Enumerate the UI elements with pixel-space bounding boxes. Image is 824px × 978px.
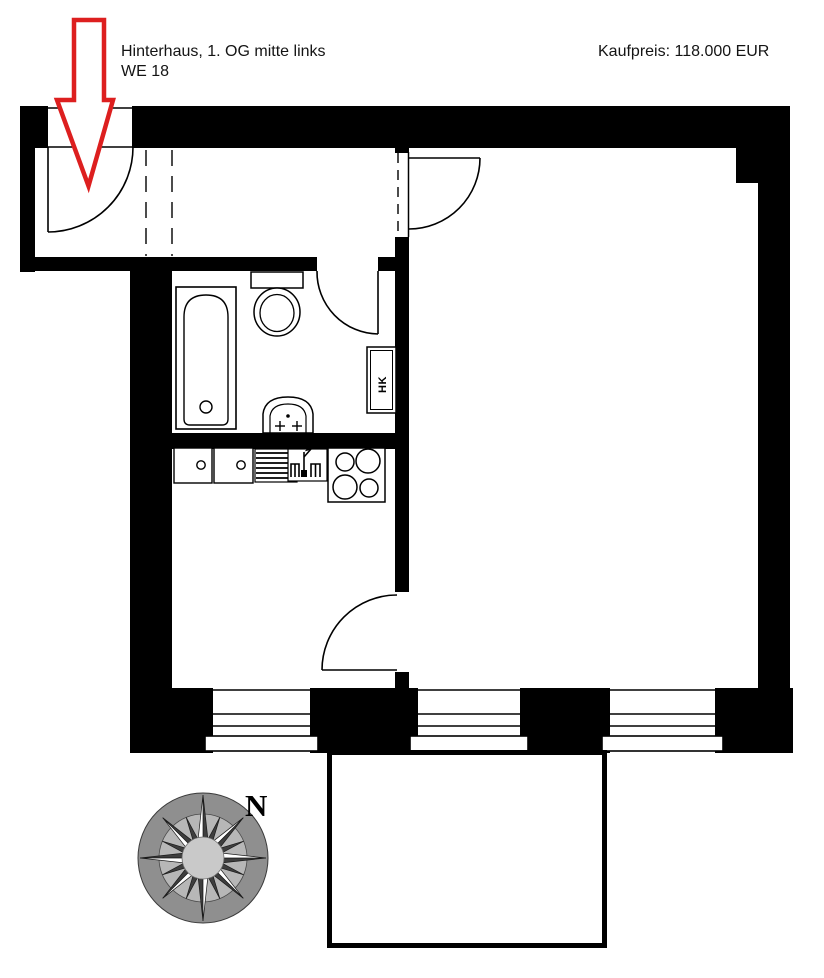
window-sill-living-1	[410, 736, 528, 751]
living-room-door	[409, 158, 480, 229]
living-door-swing	[409, 158, 480, 229]
wall-left-vestibule	[20, 106, 35, 272]
wall-bottom-pier-1	[310, 688, 418, 753]
balcony	[330, 753, 605, 946]
wall-right	[758, 106, 790, 753]
sink-drain-2	[237, 461, 245, 469]
floor-plan-page: Hinterhaus, 1. OG mitte links WE 18 Kauf…	[0, 0, 824, 978]
washbasin-drain	[286, 414, 290, 418]
kitchen-sink-basin-2	[214, 448, 253, 483]
stove	[328, 448, 385, 502]
wall-bottom-pier-2	[520, 688, 610, 753]
wall-left-lower	[130, 257, 172, 753]
dashed-partitions	[146, 150, 398, 256]
kitchen-sink-basin-1	[174, 448, 212, 483]
radiator: HK	[367, 347, 396, 413]
unit-pointer-arrow-icon	[57, 20, 113, 186]
wall-bottom-left-block	[130, 688, 213, 753]
floor-plan-drawing: HK	[0, 0, 824, 978]
bathroom-door	[317, 271, 378, 334]
kitchen-door	[322, 595, 397, 670]
kitchen-door-swing	[322, 595, 397, 670]
toilet	[251, 272, 303, 336]
sink-drain-1	[197, 461, 205, 469]
wall-top	[132, 106, 758, 148]
window-kitchen	[213, 690, 310, 726]
window-sill-kitchen	[205, 736, 318, 751]
wall-bath-kitchen	[172, 433, 409, 449]
north-label: N	[245, 788, 267, 823]
compass-rose: N	[138, 788, 268, 923]
wall-bottom-right-block	[715, 688, 793, 753]
walls	[20, 106, 793, 753]
bathroom-fixtures: HK	[176, 272, 396, 433]
windows	[205, 690, 723, 751]
window-living-2	[610, 690, 715, 726]
water-heater-symbol	[288, 443, 327, 481]
wall-bath-top-a	[172, 257, 317, 271]
compass-center-circle	[182, 837, 224, 879]
radiator-label: HK	[377, 376, 389, 393]
window-sill-living-2	[602, 736, 723, 751]
wall-living-bottom	[395, 672, 409, 688]
wall-living-mid	[395, 237, 409, 592]
kitchen-fixtures	[174, 443, 385, 502]
wall-living-stub	[395, 148, 409, 153]
toilet-bowl	[254, 288, 300, 336]
toilet-cistern	[251, 272, 303, 288]
washbasin	[263, 397, 313, 433]
window-living-1	[418, 690, 520, 726]
bathroom-door-swing	[317, 271, 378, 334]
bathtub	[176, 287, 236, 429]
